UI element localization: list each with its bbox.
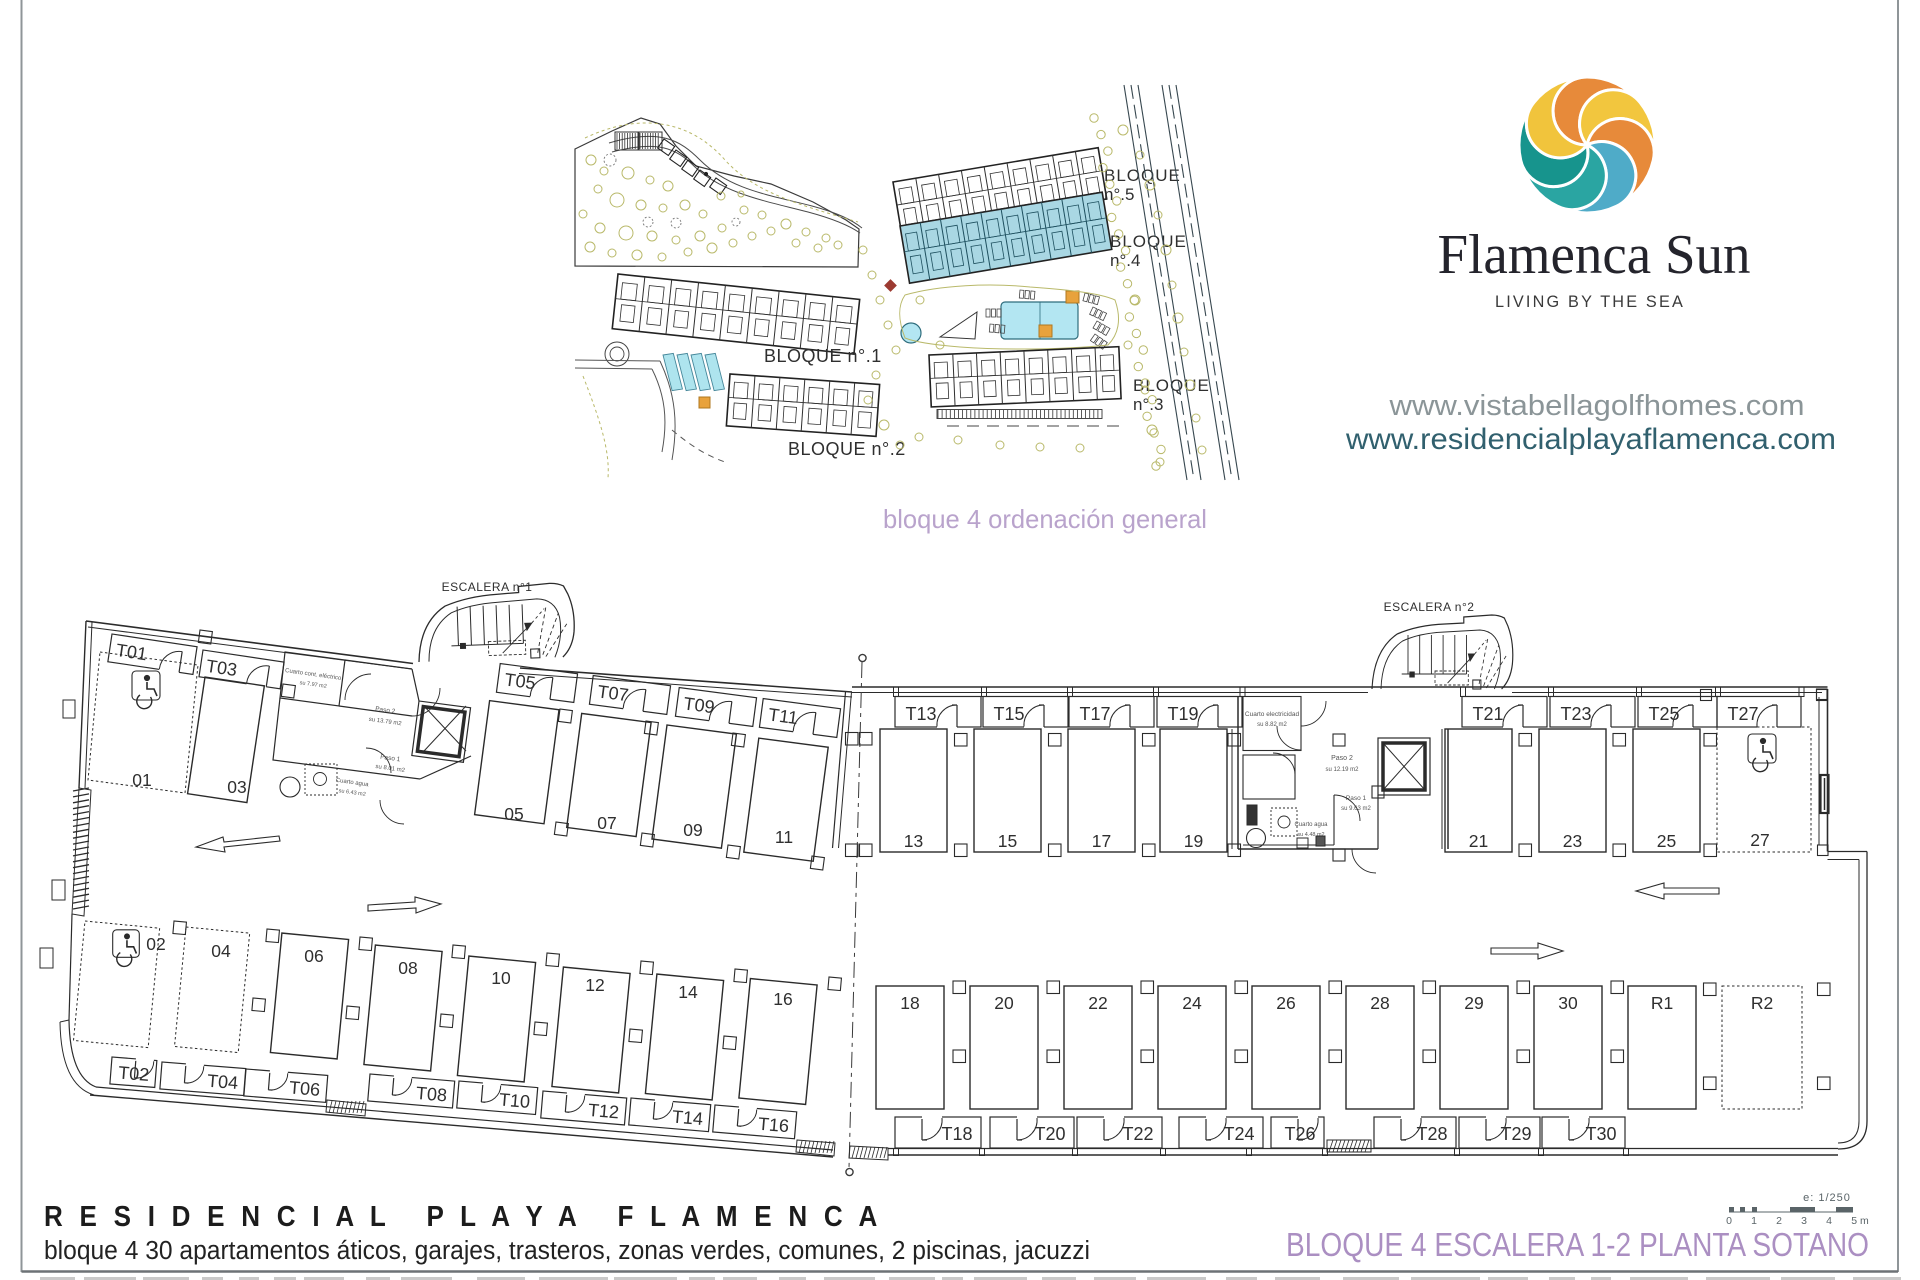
svg-text:T14: T14	[671, 1107, 704, 1130]
svg-text:T26: T26	[1284, 1124, 1315, 1144]
svg-text:su 8.82 m2: su 8.82 m2	[1257, 722, 1287, 728]
svg-text:15: 15	[998, 831, 1017, 851]
svg-text:30: 30	[1558, 993, 1578, 1013]
svg-text:T27: T27	[1727, 704, 1758, 724]
svg-text:Cuarto electricidad: Cuarto electricidad	[1245, 711, 1300, 718]
svg-text:T11: T11	[767, 704, 799, 728]
svg-text:T01: T01	[115, 640, 149, 664]
svg-text:T07: T07	[596, 681, 629, 705]
svg-text:LIVING BY THE SEA: LIVING BY THE SEA	[1495, 293, 1685, 311]
svg-text:12: 12	[585, 975, 604, 995]
svg-text:25: 25	[1657, 831, 1676, 851]
svg-text:su 7.97 m2: su 7.97 m2	[299, 680, 327, 690]
svg-text:www.residencialplayaflamenca.c: www.residencialplayaflamenca.com	[1345, 423, 1836, 456]
svg-text:bloque 4 ordenación general: bloque 4 ordenación general	[883, 504, 1207, 534]
svg-text:Cuarto agua: Cuarto agua	[1294, 822, 1328, 828]
svg-text:R2: R2	[1751, 993, 1773, 1013]
svg-text:28: 28	[1370, 993, 1389, 1013]
svg-text:Paso 2: Paso 2	[1331, 755, 1353, 762]
svg-text:08: 08	[398, 958, 417, 978]
svg-text:0: 0	[1726, 1215, 1732, 1227]
svg-text:T05: T05	[503, 669, 536, 693]
svg-text:T15: T15	[993, 704, 1024, 724]
svg-text:su 13.79 m2: su 13.79 m2	[368, 717, 402, 728]
svg-text:T22: T22	[1122, 1124, 1153, 1144]
svg-text:T21: T21	[1472, 704, 1503, 724]
svg-text:T28: T28	[1416, 1124, 1447, 1144]
svg-text:BLOQUE n°.1: BLOQUE n°.1	[764, 346, 882, 366]
svg-text:26: 26	[1276, 993, 1295, 1013]
svg-text:T18: T18	[941, 1124, 972, 1144]
svg-text:T08: T08	[415, 1083, 448, 1106]
svg-text:T29: T29	[1500, 1124, 1531, 1144]
svg-text:BLOQUE n°.2: BLOQUE n°.2	[788, 439, 906, 459]
svg-text:www.vistabellagolfhomes.com: www.vistabellagolfhomes.com	[1388, 390, 1804, 422]
svg-text:T16: T16	[757, 1114, 790, 1137]
svg-text:16: 16	[773, 989, 792, 1009]
svg-text:13: 13	[904, 831, 923, 851]
svg-text:24: 24	[1182, 993, 1202, 1013]
svg-text:22: 22	[1088, 993, 1107, 1013]
svg-text:ESCALERA n°1: ESCALERA n°1	[442, 580, 533, 594]
svg-text:BLOQUE 4 ESCALERA 1-2 PLANTA S: BLOQUE 4 ESCALERA 1-2 PLANTA SOTANO	[1286, 1226, 1869, 1263]
svg-text:su 6.43 m2: su 6.43 m2	[338, 788, 366, 798]
svg-text:T10: T10	[498, 1089, 531, 1112]
svg-text:06: 06	[304, 946, 323, 966]
svg-text:T04: T04	[206, 1071, 239, 1093]
svg-text:10: 10	[491, 968, 511, 988]
svg-text:ESCALERA n°2: ESCALERA n°2	[1384, 600, 1475, 614]
svg-text:3: 3	[1801, 1215, 1807, 1227]
svg-text:20: 20	[994, 993, 1014, 1013]
svg-text:bloque 4 30 apartamentos ático: bloque 4 30 apartamentos áticos, garajes…	[44, 1237, 1090, 1265]
svg-text:Paso 1: Paso 1	[1346, 795, 1367, 802]
svg-text:T17: T17	[1079, 704, 1110, 724]
svg-text:03: 03	[227, 777, 246, 797]
svg-text:27: 27	[1750, 830, 1769, 850]
svg-text:04: 04	[211, 941, 231, 961]
svg-text:R1: R1	[1651, 993, 1673, 1013]
svg-text:Cuarto agua: Cuarto agua	[335, 778, 369, 789]
svg-text:T09: T09	[682, 693, 715, 717]
svg-text:su 12.19 m2: su 12.19 m2	[1325, 767, 1359, 773]
svg-text:T02: T02	[117, 1063, 150, 1085]
svg-text:4: 4	[1826, 1215, 1832, 1227]
svg-text:T23: T23	[1560, 704, 1591, 724]
svg-text:T06: T06	[288, 1077, 321, 1099]
svg-text:Paso 2: Paso 2	[375, 706, 396, 716]
svg-text:18: 18	[900, 993, 919, 1013]
svg-text:5 m: 5 m	[1851, 1215, 1869, 1227]
svg-text:19: 19	[1184, 831, 1203, 851]
svg-text:T12: T12	[587, 1100, 620, 1123]
svg-text:14: 14	[678, 982, 698, 1002]
svg-text:T30: T30	[1585, 1124, 1616, 1144]
svg-text:T20: T20	[1034, 1124, 1065, 1144]
svg-text:Flamenca Sun: Flamenca Sun	[1438, 224, 1751, 286]
svg-text:07: 07	[597, 813, 616, 833]
svg-text:21: 21	[1469, 831, 1488, 851]
svg-text:17: 17	[1092, 831, 1111, 851]
svg-text:e: 1/250: e: 1/250	[1803, 1192, 1851, 1204]
svg-text:R E S I D E N C I A L P L A: R E S I D E N C I A L P L A Y A F L A M …	[44, 1201, 882, 1233]
svg-text:23: 23	[1563, 831, 1582, 851]
svg-text:11: 11	[775, 827, 793, 847]
svg-text:01: 01	[132, 770, 151, 790]
svg-text:T24: T24	[1223, 1124, 1254, 1144]
svg-text:2: 2	[1776, 1215, 1782, 1227]
svg-text:T03: T03	[205, 656, 239, 680]
svg-text:Cuarto cont. eléctrico: Cuarto cont. eléctrico	[285, 668, 343, 682]
svg-text:05: 05	[504, 804, 523, 824]
svg-text:T19: T19	[1167, 704, 1198, 724]
svg-text:29: 29	[1464, 993, 1483, 1013]
svg-text:T13: T13	[905, 704, 936, 724]
svg-text:BLOQUE: BLOQUE	[1104, 166, 1181, 185]
svg-text:02: 02	[146, 934, 165, 954]
svg-text:T25: T25	[1648, 704, 1679, 724]
svg-text:1: 1	[1751, 1215, 1757, 1227]
svg-text:09: 09	[683, 820, 702, 840]
